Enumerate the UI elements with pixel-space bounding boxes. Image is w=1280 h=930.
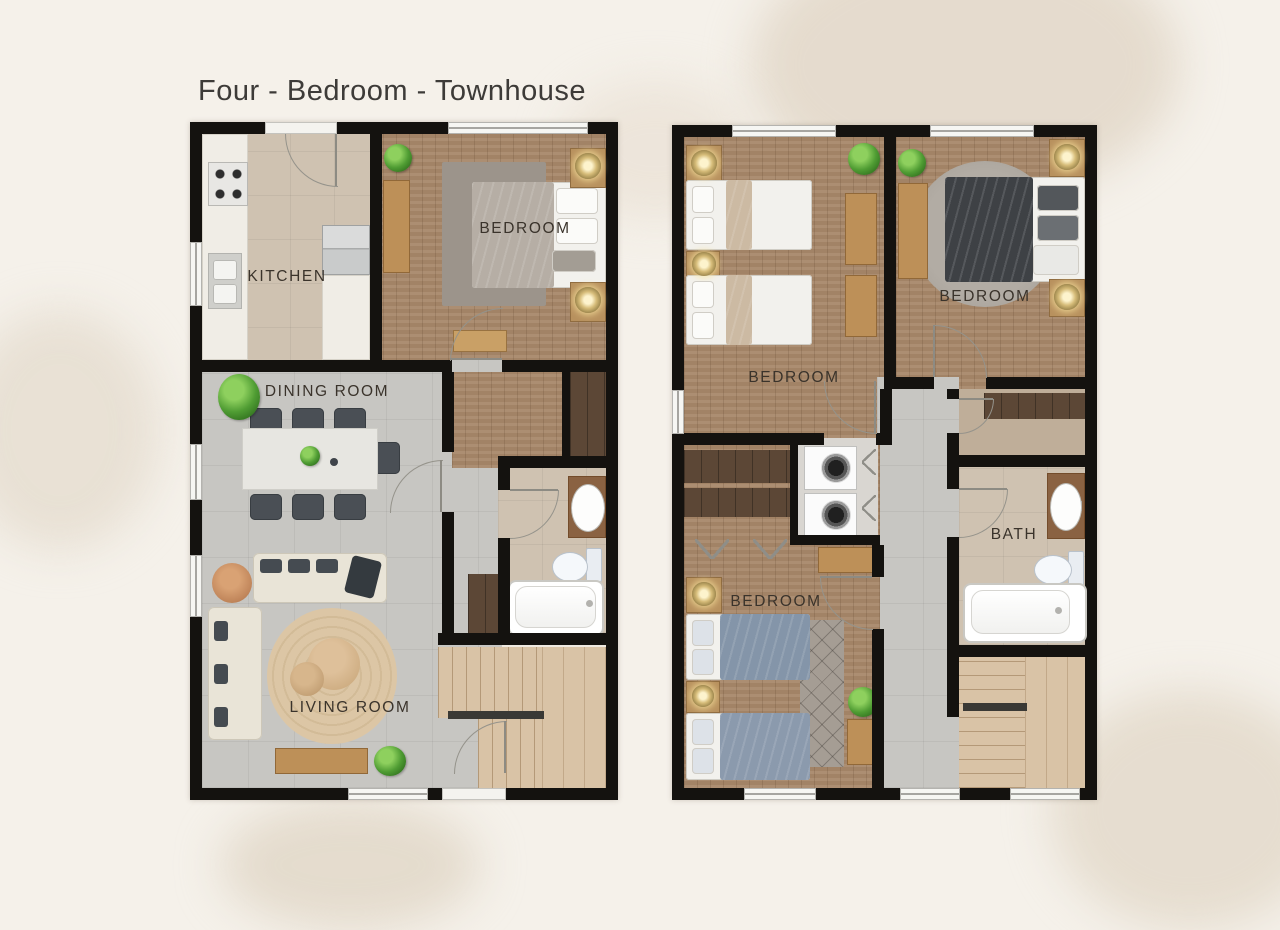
sofa-cushion — [214, 707, 228, 727]
stairs-landing — [542, 647, 606, 788]
room-label-bedroom: BEDROOM — [748, 369, 839, 387]
wall — [790, 438, 798, 545]
door-leaf — [510, 489, 558, 491]
wall — [872, 545, 884, 577]
table-centerpiece-plant — [300, 446, 320, 466]
bathroom-sink — [571, 484, 605, 532]
wall — [498, 468, 510, 490]
stairs-run — [959, 657, 1025, 788]
sink-basin — [213, 284, 237, 304]
bed-pillow — [552, 250, 596, 272]
wall — [896, 377, 934, 389]
bed-pillow — [692, 748, 714, 774]
table-lamp — [692, 685, 714, 707]
door-leaf — [335, 134, 337, 186]
window — [744, 788, 816, 800]
bed-pillow — [692, 312, 714, 339]
potted-plant — [898, 149, 926, 177]
sofa-cushion — [316, 559, 338, 573]
wall — [684, 433, 824, 445]
dresser — [383, 180, 410, 273]
wardrobe — [684, 488, 793, 517]
potted-plant — [384, 144, 412, 172]
sofa-cushion — [214, 621, 228, 641]
bed-pillow — [692, 281, 714, 308]
door-leaf — [504, 721, 506, 773]
desk — [845, 193, 877, 265]
table-lamp — [692, 582, 716, 606]
bed-blanket — [726, 180, 752, 250]
background-blotch — [220, 800, 480, 930]
window — [190, 444, 202, 500]
wall — [790, 535, 880, 545]
bifold-door-icon — [862, 449, 876, 475]
table-lamp — [575, 153, 601, 179]
bed-pillow — [692, 620, 714, 646]
window — [1010, 788, 1080, 800]
wall — [442, 512, 454, 637]
bed-duvet — [720, 713, 810, 780]
bed-pillow — [692, 649, 714, 675]
kitchen-counter — [322, 275, 370, 360]
wardrobe-door-icon — [695, 539, 729, 559]
round-side-table — [212, 563, 252, 603]
sink-basin — [213, 260, 237, 280]
table-lamp — [575, 287, 601, 313]
window — [448, 122, 588, 134]
laundry-counter — [818, 547, 878, 573]
door-leaf — [820, 576, 872, 578]
stairs-landing — [1025, 657, 1085, 788]
wall — [947, 657, 959, 717]
wall — [880, 389, 892, 433]
bed-blanket — [726, 275, 752, 345]
table-lamp — [691, 150, 717, 176]
toilet-bowl — [552, 552, 588, 582]
bed-pillow — [692, 217, 714, 244]
wall — [884, 137, 896, 389]
table-lamp — [1054, 144, 1080, 170]
door-leaf — [959, 488, 1007, 490]
background-blotch — [0, 310, 160, 550]
wall — [947, 537, 959, 645]
room-label-bedroom: BEDROOM — [730, 593, 821, 611]
bed-duvet — [720, 614, 810, 680]
stair-handrail — [963, 703, 1027, 711]
desk — [898, 183, 928, 279]
floor-plan-ground: KITCHEN BEDROOM DINING ROOM LIVING ROOM — [190, 122, 618, 800]
potted-plant — [374, 746, 406, 776]
wall — [442, 372, 454, 452]
wall — [947, 455, 1085, 467]
wall — [498, 456, 606, 468]
stairs-run — [438, 647, 542, 718]
page-title: Four - Bedroom - Townhouse — [198, 75, 586, 108]
door-leaf — [450, 358, 502, 360]
dryer-drum — [821, 500, 851, 530]
window — [348, 788, 428, 800]
wall — [202, 360, 382, 372]
bed-pillow — [1037, 185, 1079, 211]
entry-door-opening — [442, 788, 506, 800]
coffee-table — [290, 662, 324, 696]
dining-chair — [334, 494, 366, 520]
window — [900, 788, 960, 800]
room-label-bedroom: BEDROOM — [479, 220, 570, 238]
stair-handrail — [448, 711, 544, 719]
bed-pillow — [692, 186, 714, 213]
dining-chair — [250, 494, 282, 520]
window — [732, 125, 836, 137]
wall — [947, 467, 959, 489]
dining-chair — [292, 494, 324, 520]
wardrobe — [684, 450, 793, 483]
door-leaf — [440, 460, 442, 512]
toilet-tank — [586, 548, 602, 582]
wall — [370, 134, 382, 360]
room-label-living: LIVING ROOM — [290, 699, 411, 717]
window — [190, 555, 202, 617]
bed-pillow — [692, 719, 714, 745]
wardrobe-door-icon — [753, 539, 787, 559]
bathtub-basin — [515, 586, 596, 628]
refrigerator — [322, 225, 370, 275]
room-label-bedroom: BEDROOM — [939, 288, 1030, 306]
stove-cooktop — [208, 162, 248, 206]
floor-plan-upper: BEDROOM BEDROOM BEDROOM BATH — [672, 125, 1097, 800]
wall — [872, 629, 884, 788]
potted-plant — [218, 374, 260, 420]
window — [930, 125, 1034, 137]
hall-cabinet — [468, 574, 498, 633]
entry-door-opening — [265, 122, 337, 134]
room-label-bath: BATH — [991, 526, 1038, 544]
bathroom-sink — [1050, 483, 1082, 531]
sofa-cushion — [288, 559, 310, 573]
wall — [947, 389, 959, 399]
sofa-cushion — [260, 559, 282, 573]
door-leaf — [959, 398, 993, 400]
window — [190, 242, 202, 306]
console-table — [275, 748, 368, 774]
window — [672, 390, 684, 434]
potted-plant — [848, 143, 880, 175]
bed-pillow — [556, 188, 598, 214]
hall-wardrobe — [570, 372, 606, 468]
bed-duvet — [945, 177, 1033, 282]
door-leaf — [933, 325, 935, 377]
room-label-dining: DINING ROOM — [265, 383, 389, 401]
wall — [986, 377, 1085, 389]
table-lamp — [692, 252, 716, 276]
wall — [498, 538, 510, 633]
floorplan-page: { "title": "Four - Bedroom - Townhouse",… — [0, 0, 1280, 905]
bed-pillow — [1037, 215, 1079, 241]
wall — [876, 433, 892, 445]
wall — [562, 372, 570, 468]
tub-faucet — [586, 600, 593, 607]
bed-sheet — [1033, 245, 1079, 275]
wardrobe — [984, 393, 1085, 419]
toilet-bowl — [1034, 555, 1072, 585]
bifold-door-icon — [862, 495, 876, 521]
wall — [502, 360, 606, 372]
sofa-cushion — [214, 664, 228, 684]
tub-faucet — [1055, 607, 1062, 614]
washer-drum — [821, 453, 851, 483]
wall — [947, 645, 1085, 657]
room-label-kitchen: KITCHEN — [247, 268, 326, 286]
wall — [438, 633, 606, 645]
door-leaf — [874, 381, 876, 433]
table-lamp — [1054, 284, 1080, 310]
desk — [845, 275, 877, 337]
wall — [382, 360, 452, 372]
table-decor — [330, 458, 338, 466]
